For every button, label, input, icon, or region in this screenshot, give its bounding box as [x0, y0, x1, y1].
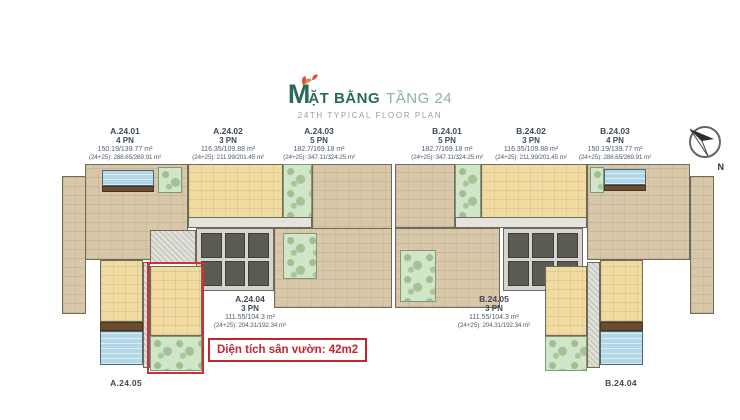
pool-a2401: [102, 170, 154, 186]
unit-bedrooms: 3 PN: [448, 304, 540, 314]
unit-label-b2405: B.24.05 3 PN 111.55/104.3 m² (24+25): 20…: [448, 294, 540, 330]
unit-label-b2403: B.24.03 4 PN 150.19/139.77 m² (24+25): 2…: [561, 126, 669, 162]
pool-deck-b2403: [604, 185, 646, 191]
unit-area: 182.7/169.18 m²: [265, 146, 373, 154]
floor-plan-page: M ẶT BẰNG TẦNG 24 24TH TYPICAL FLOOR PLA…: [0, 0, 740, 420]
lotus-flower-icon: [299, 72, 319, 87]
corridor-lobby-a: [188, 217, 312, 228]
garden-a2401: [158, 167, 182, 193]
unit-area: 150.19/139.77 m²: [561, 146, 669, 154]
unit-id: A.24.04: [204, 294, 296, 304]
unit-id: A.24.03: [265, 126, 373, 136]
elevator-a4: [201, 261, 222, 286]
pool-b2403: [604, 169, 646, 185]
pool-a2405: [100, 331, 143, 365]
unit-bedrooms: 4 PN: [561, 136, 669, 146]
elevator-b1: [508, 233, 529, 258]
garden-b2402: [455, 164, 481, 222]
plan-wing-left: [62, 176, 86, 314]
page-title: M ẶT BẰNG TẦNG 24: [288, 84, 452, 107]
compass-north-label: N: [718, 162, 725, 172]
elevator-a3: [248, 233, 269, 258]
unit-id: B.24.03: [561, 126, 669, 136]
pool-deck-a2401: [102, 186, 154, 192]
unit-area-combined: (24+25): 204.31/192.34 m²: [448, 322, 540, 330]
garden-area-annotation: Diện tích sân vườn: 42m2: [208, 338, 367, 362]
garden-a2403: [283, 233, 317, 279]
elevator-b2: [532, 233, 553, 258]
unit-area-combined: (24+25): 347.11/324.25 m²: [265, 154, 373, 162]
elevator-core-a: [196, 228, 274, 291]
unit-area-combined: (24+25): 288.65/269.91 m²: [561, 154, 669, 162]
garden-b2403: [590, 167, 604, 193]
unit-id: A.24.01: [71, 126, 179, 136]
unit-id: B.24.05: [448, 294, 540, 304]
corridor-vertical-b: [587, 262, 600, 368]
brand-logo: M: [288, 84, 311, 106]
elevator-a6: [248, 261, 269, 286]
garden-b2401: [400, 250, 436, 302]
elevator-a2: [225, 233, 246, 258]
plan-unit-b2401-top: [395, 164, 455, 228]
pool-b2404: [600, 331, 643, 365]
corridor-lobby-b: [455, 217, 587, 228]
unit-area: 111.55/104.3 m²: [204, 314, 296, 322]
unit-area: 150.19/139.77 m²: [71, 146, 179, 154]
pool-deck-b2404: [600, 322, 643, 331]
unit-area: 111.55/104.3 m²: [448, 314, 540, 322]
unit-label-a2405: A.24.05: [94, 378, 158, 388]
garden-a2402: [283, 164, 312, 222]
unit-label-a2401: A.24.01 4 PN 150.19/139.77 m² (24+25): 2…: [71, 126, 179, 162]
unit-label-a2403: A.24.03 5 PN 182.7/169.18 m² (24+25): 34…: [265, 126, 373, 162]
garden-b2405: [545, 336, 587, 371]
unit-area-combined: (24+25): 288.65/269.91 m²: [71, 154, 179, 162]
unit-bedrooms: 5 PN: [265, 136, 373, 146]
unit-label-b2404: B.24.04: [589, 378, 653, 388]
elevator-b3: [557, 233, 578, 258]
plan-unit-b2405: [545, 266, 587, 336]
page-subtitle: 24TH TYPICAL FLOOR PLAN: [0, 111, 740, 120]
unit-area-combined: (24+25): 204.31/192.34 m²: [204, 322, 296, 330]
unit-label-a2404: A.24.04 3 PN 111.55/104.3 m² (24+25): 20…: [204, 294, 296, 330]
plan-unit-b2404: [600, 260, 643, 322]
elevator-a1: [201, 233, 222, 258]
elevator-a5: [225, 261, 246, 286]
unit-bedrooms: 4 PN: [71, 136, 179, 146]
page-header: M ẶT BẰNG TẦNG 24 24TH TYPICAL FLOOR PLA…: [0, 84, 740, 120]
plan-wing-right: [690, 176, 714, 314]
pool-deck-a2405: [100, 322, 143, 331]
compass-icon: [682, 122, 730, 166]
stair-landing-a: [150, 230, 196, 264]
plan-unit-a2405: [100, 260, 143, 322]
title-accent: TẦNG 24: [386, 90, 452, 107]
highlight-rect-a2404: [147, 262, 204, 374]
unit-bedrooms: 3 PN: [204, 304, 296, 314]
title-main: ẶT BẰNG: [308, 90, 380, 107]
elevator-b4: [508, 261, 529, 286]
